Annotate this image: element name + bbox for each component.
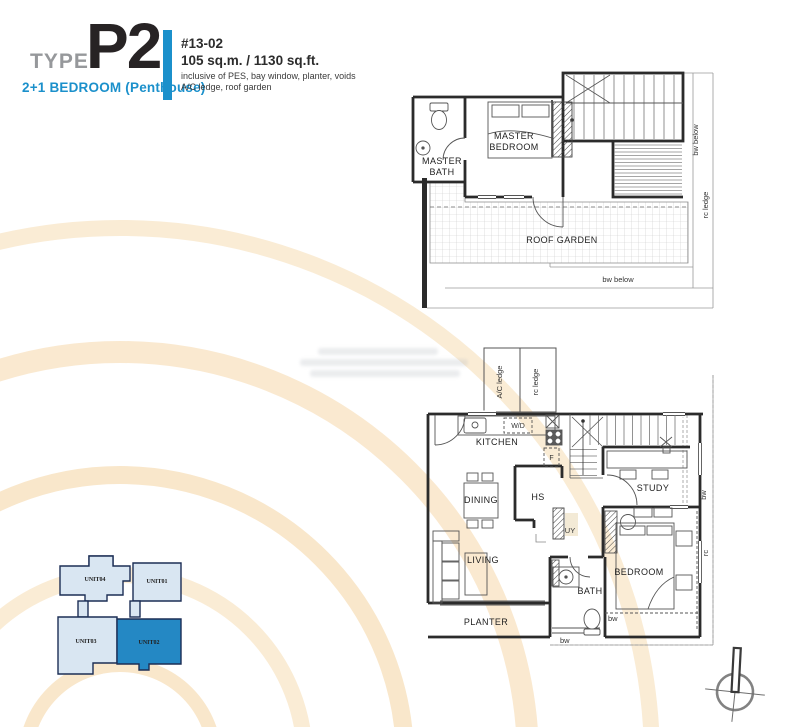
study-chair-icon <box>652 470 668 479</box>
header: TYPE P2 2+1 BEDROOM (Penthouse) #13-02 1… <box>0 0 420 120</box>
dining-chair-icon <box>482 520 493 528</box>
bw-bath-label: bw <box>560 636 570 645</box>
toilet-tank-icon <box>430 103 448 111</box>
upper-left-wall <box>422 178 427 308</box>
type-code: P2 <box>86 14 160 78</box>
bw-below-right-label: bw below <box>691 124 700 156</box>
type-label: TYPE <box>30 50 89 74</box>
unit-04-label: UNIT04 <box>84 577 105 583</box>
unit-03-label: UNIT03 <box>75 639 96 645</box>
kitchen-sink-icon <box>464 418 486 433</box>
bedroom-table-icon <box>621 515 636 530</box>
wd-label: W/D <box>511 423 525 430</box>
upper-floor-plan: MASTER BATH MASTER BEDROOM ROOF GARDEN b… <box>400 60 720 312</box>
unit-details: #13-02 105 sq.m. / 1130 sq.ft. inclusive… <box>181 36 356 94</box>
bw-below-bottom-label: bw below <box>602 275 634 284</box>
hs-label: HS <box>531 492 544 502</box>
living-furniture <box>433 531 487 603</box>
toilet-icon <box>432 111 447 130</box>
living-label: LIVING <box>467 555 499 565</box>
unit-number: #13-02 <box>181 36 356 51</box>
planter-label: PLANTER <box>464 617 508 627</box>
lower-outer-boundary <box>550 375 713 645</box>
study-desk-icon <box>607 451 687 468</box>
ac-ledge-label: A/C ledge <box>495 366 504 399</box>
unit-connector <box>130 601 140 617</box>
bedroom-wardrobe-icon <box>605 511 617 553</box>
north-compass-icon <box>693 636 777 724</box>
master-bath-label-1: MASTER <box>422 156 462 166</box>
unit-01-label: UNIT01 <box>146 579 167 585</box>
master-bath-label-2: BATH <box>430 167 455 177</box>
unit-connector <box>78 601 88 617</box>
bedroom-type-label: 2+1 BEDROOM (Penthouse) <box>22 80 206 95</box>
entrance-door-arc <box>435 415 465 445</box>
inclusive-line-1: inclusive of PES, bay window, planter, v… <box>181 71 356 82</box>
bath-label: BATH <box>578 586 603 596</box>
unit-location-diagram: UNIT04 UNIT01 UNIT03 UNIT02 <box>33 553 218 703</box>
dining-chair-icon <box>467 520 478 528</box>
unit-02-label: UNIT02 <box>138 640 159 646</box>
bw-bedroom-label: bw <box>608 614 618 623</box>
bedroom-label: BEDROOM <box>614 567 663 577</box>
bw-study-label: bw <box>699 490 708 500</box>
sofa-icon <box>433 541 442 603</box>
bath-fixtures <box>552 557 600 635</box>
dining-label: DINING <box>464 495 498 505</box>
uy-cabinet-icon <box>553 508 564 539</box>
rc-ledge-label: rc ledge <box>531 369 540 396</box>
unit-area: 105 sq.m. / 1130 sq.ft. <box>181 53 356 68</box>
unit-03 <box>58 617 117 674</box>
bath-toilet-icon <box>584 609 600 629</box>
master-bedroom-label-2: BEDROOM <box>489 142 538 152</box>
master-bedroom-label-1: MASTER <box>494 131 534 141</box>
uy-label: UY <box>565 526 575 535</box>
study-chair-icon <box>620 470 636 479</box>
kitchen-label: KITCHEN <box>476 437 518 447</box>
inclusive-line-2: A/C ledge, roof garden <box>181 82 356 93</box>
upper-walls <box>413 73 683 197</box>
bedroom-bed-icon <box>616 523 674 609</box>
master-bath-fixtures <box>416 103 448 155</box>
roof-garden-label: ROOF GARDEN <box>526 235 597 245</box>
study-label: STUDY <box>637 483 670 493</box>
rc-bedroom-label: rc <box>701 550 710 556</box>
dining-chair-icon <box>482 473 493 481</box>
rc-ledge-right-label: rc ledge <box>701 192 710 219</box>
upper-staircase-icon <box>566 75 683 139</box>
dining-chair-icon <box>467 473 478 481</box>
louver-roof-icon <box>614 145 682 194</box>
wardrobe-icon <box>553 102 572 157</box>
lower-floor-plan: A/C ledge rc ledge <box>420 345 732 680</box>
hs-step <box>536 534 546 542</box>
fridge-label: F <box>549 455 553 462</box>
